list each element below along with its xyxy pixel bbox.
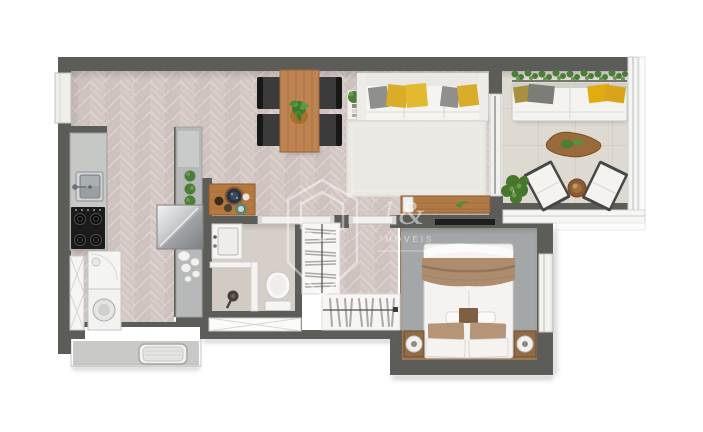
svg-text:l: l — [384, 196, 392, 229]
svg-text:&: & — [398, 195, 425, 232]
svg-text:IMOVEIS: IMOVEIS — [380, 235, 434, 244]
